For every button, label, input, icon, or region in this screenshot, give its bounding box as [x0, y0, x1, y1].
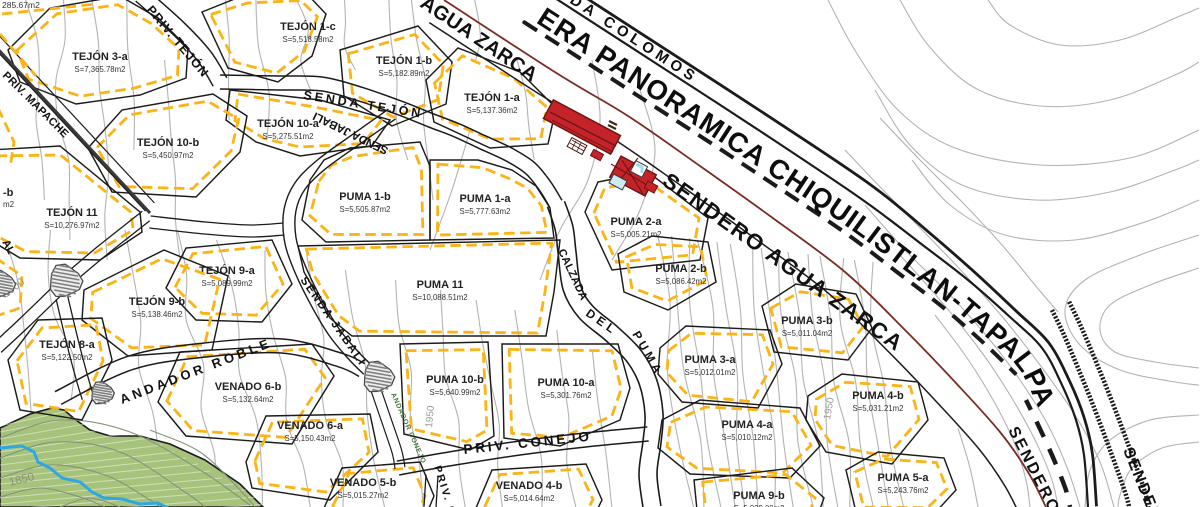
svg-text:PUMA 10-a: PUMA 10-a — [537, 377, 595, 389]
svg-text:PUMA 4-a: PUMA 4-a — [722, 419, 774, 431]
svg-text:S=5,182.89m2: S=5,182.89m2 — [379, 69, 430, 78]
svg-text:S=5,301.76m2: S=5,301.76m2 — [541, 391, 592, 400]
svg-text:TEJÓN 1-b: TEJÓN 1-b — [376, 54, 433, 67]
svg-text:S=5,086.42m2: S=5,086.42m2 — [656, 277, 707, 286]
svg-text:S=5,138.46m2: S=5,138.46m2 — [132, 310, 183, 319]
svg-text:S=5,150.43m2: S=5,150.43m2 — [285, 434, 336, 443]
svg-text:VENADO 5-b: VENADO 5-b — [330, 477, 397, 489]
svg-text:PUMA 2-b: PUMA 2-b — [655, 263, 707, 275]
svg-text:PUMA 4-b: PUMA 4-b — [852, 390, 904, 402]
svg-text:S=5,243.76m2: S=5,243.76m2 — [878, 486, 929, 495]
svg-text:S=5,015.27m2: S=5,015.27m2 — [338, 491, 389, 500]
svg-text:S=5,640.99m2: S=5,640.99m2 — [430, 388, 481, 397]
svg-text:285.67m2: 285.67m2 — [2, 0, 40, 10]
svg-text:TEJÓN 10-b: TEJÓN 10-b — [137, 136, 200, 149]
svg-text:S=5,505.87m2: S=5,505.87m2 — [340, 205, 391, 214]
svg-text:S=5,005.21m2: S=5,005.21m2 — [611, 230, 662, 239]
svg-text:S=5,031.21m2: S=5,031.21m2 — [853, 404, 904, 413]
svg-text:1950: 1950 — [424, 405, 437, 429]
svg-text:TEJÓN 1-a: TEJÓN 1-a — [464, 91, 521, 104]
svg-text:-b: -b — [3, 187, 14, 199]
svg-text:PUMA 1-b: PUMA 1-b — [339, 191, 391, 203]
svg-text:m2: m2 — [3, 200, 15, 209]
svg-text:PUMA 5-a: PUMA 5-a — [878, 472, 930, 484]
svg-text:S=5,132.64m2: S=5,132.64m2 — [223, 395, 274, 404]
svg-text:S=5,777.63m2: S=5,777.63m2 — [460, 207, 511, 216]
svg-text:PUMA 2-a: PUMA 2-a — [611, 216, 663, 228]
svg-text:S=10,088.51m2: S=10,088.51m2 — [412, 293, 467, 302]
svg-text:S=5,275.51m2: S=5,275.51m2 — [263, 132, 314, 141]
svg-text:PUMA 1-a: PUMA 1-a — [460, 193, 512, 205]
svg-text:TEJÓN 1-c: TEJÓN 1-c — [280, 20, 336, 33]
svg-text:S=5,011.04m2: S=5,011.04m2 — [782, 329, 832, 338]
svg-text:S=10,276.97m2: S=10,276.97m2 — [44, 221, 99, 230]
svg-text:S=5,122.50m2: S=5,122.50m2 — [42, 353, 93, 362]
svg-text:S=5,137.36m2: S=5,137.36m2 — [467, 106, 518, 115]
svg-text:PUMA 11: PUMA 11 — [417, 279, 464, 291]
svg-text:TEJÓN 3-a: TEJÓN 3-a — [72, 50, 129, 63]
svg-text:PUMA 10-b: PUMA 10-b — [426, 374, 484, 386]
svg-text:S=5,014.64m2: S=5,014.64m2 — [504, 494, 555, 503]
svg-text:VENADO 4-b: VENADO 4-b — [496, 480, 563, 492]
svg-text:VENADO 6-a: VENADO 6-a — [277, 420, 344, 432]
svg-text:S=5,450.97m2: S=5,450.97m2 — [143, 151, 194, 160]
svg-text:PUMA 9-b: PUMA 9-b — [733, 490, 785, 502]
svg-text:PUMA 3-b: PUMA 3-b — [781, 315, 833, 327]
svg-text:VENADO 6-b: VENADO 6-b — [215, 381, 282, 393]
svg-text:TEJÓN 10-a: TEJÓN 10-a — [257, 117, 320, 130]
svg-text:S=5,012.01m2: S=5,012.01m2 — [685, 368, 736, 377]
svg-text:TEJÓN 11: TEJÓN 11 — [46, 206, 97, 219]
svg-text:S=7,365.78m2: S=7,365.78m2 — [75, 65, 126, 74]
svg-text:S=5,518.58m2: S=5,518.58m2 — [283, 35, 334, 44]
svg-text:TEJÓN 9-b: TEJÓN 9-b — [129, 295, 186, 308]
svg-text:S=5,010.12m2: S=5,010.12m2 — [722, 433, 773, 442]
svg-text:PUMA 3-a: PUMA 3-a — [685, 354, 737, 366]
